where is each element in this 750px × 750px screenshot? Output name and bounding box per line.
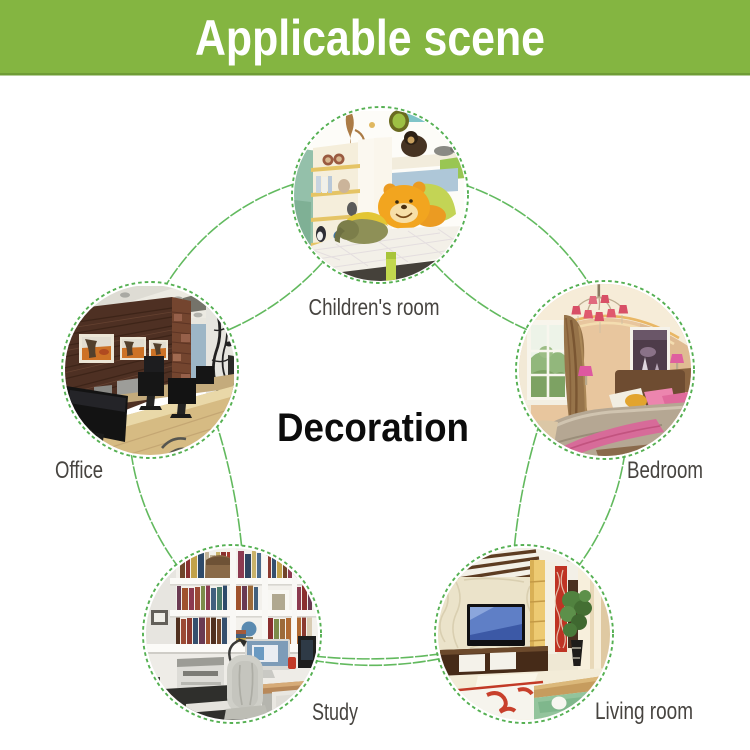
svg-text:Living room: Living room (595, 698, 693, 725)
svg-text:Decoration: Decoration (277, 406, 469, 450)
svg-text:Office: Office (55, 457, 103, 484)
svg-text:Children's room: Children's room (309, 294, 440, 320)
svg-text:Bedroom: Bedroom (627, 457, 703, 484)
svg-text:Applicable scene: Applicable scene (195, 10, 545, 66)
svg-text:Study: Study (312, 699, 358, 726)
